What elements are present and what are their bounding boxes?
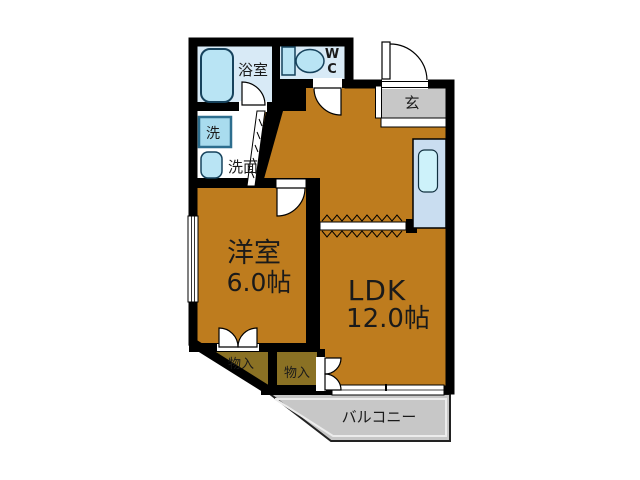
west-window <box>188 216 198 302</box>
floor-plan-svg: 浴室 W C 玄 洗 洗面 洋室 6.0帖 LDK 12.0帖 物入 物入 バル… <box>0 0 640 480</box>
toilet-icon <box>282 47 324 75</box>
washbasin-icon <box>201 152 222 178</box>
entrance-sill <box>382 79 428 89</box>
wc-label-c: C <box>327 62 337 77</box>
storage2-label: 物入 <box>284 366 310 381</box>
western-room-label: 洋室 <box>227 238 281 269</box>
western-room-size: 6.0帖 <box>227 268 292 297</box>
ldk-size: 12.0帖 <box>346 304 430 334</box>
bathroom-label: 浴室 <box>238 61 268 79</box>
ldk-label: LDK <box>348 274 407 307</box>
balcony-label: バルコニー <box>342 408 417 426</box>
entrance-label: 玄 <box>404 94 419 112</box>
bathtub-icon <box>201 49 233 102</box>
washroom-label: 洗面 <box>228 158 258 176</box>
kitchen-sink-icon <box>413 139 446 228</box>
floor-plan: 浴室 W C 玄 洗 洗面 洋室 6.0帖 LDK 12.0帖 物入 物入 バル… <box>0 0 640 480</box>
storage1-label: 物入 <box>228 357 254 372</box>
balcony-window <box>332 384 444 395</box>
laundry-label: 洗 <box>206 126 220 142</box>
wc-label-w: W <box>325 47 339 62</box>
